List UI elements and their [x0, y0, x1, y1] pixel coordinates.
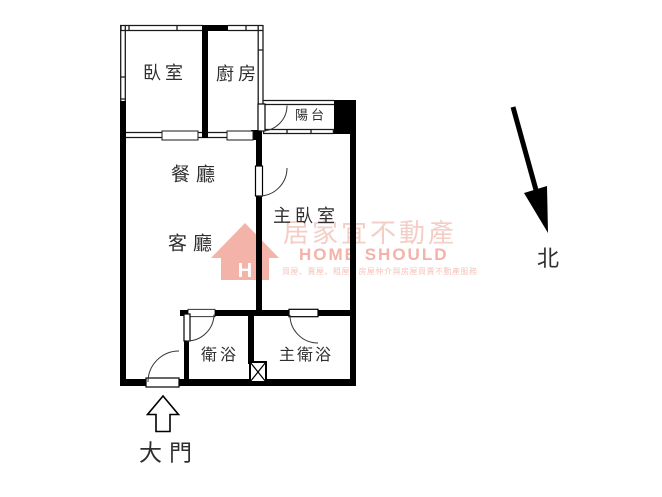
- room-label-living: 客廳: [168, 235, 218, 254]
- room-label-balcony: 陽台: [295, 109, 327, 122]
- entrance-label: 大門: [139, 442, 199, 465]
- shaft-x-box: [250, 362, 266, 382]
- entrance-arrow-icon: [148, 396, 179, 432]
- north-label: 北: [537, 248, 559, 270]
- room-label-bedroom: 臥室: [143, 64, 187, 82]
- room-label-dining: 餐廳: [171, 166, 221, 185]
- room-label-bathroom: 衛浴: [201, 348, 239, 364]
- north-arrow-icon: [513, 107, 548, 233]
- room-label-kitchen: 廚房: [216, 65, 260, 83]
- room-label-master-bedroom: 主臥室: [273, 207, 339, 225]
- room-label-master-bathroom: 主衛浴: [279, 348, 333, 364]
- floor-plan-page: H 居家宜不動產 HOME SHOULD 買屋、賣屋、租屋、房屋仲介與房屋買賣不…: [0, 0, 662, 497]
- floor-plan-drawing: [0, 0, 662, 497]
